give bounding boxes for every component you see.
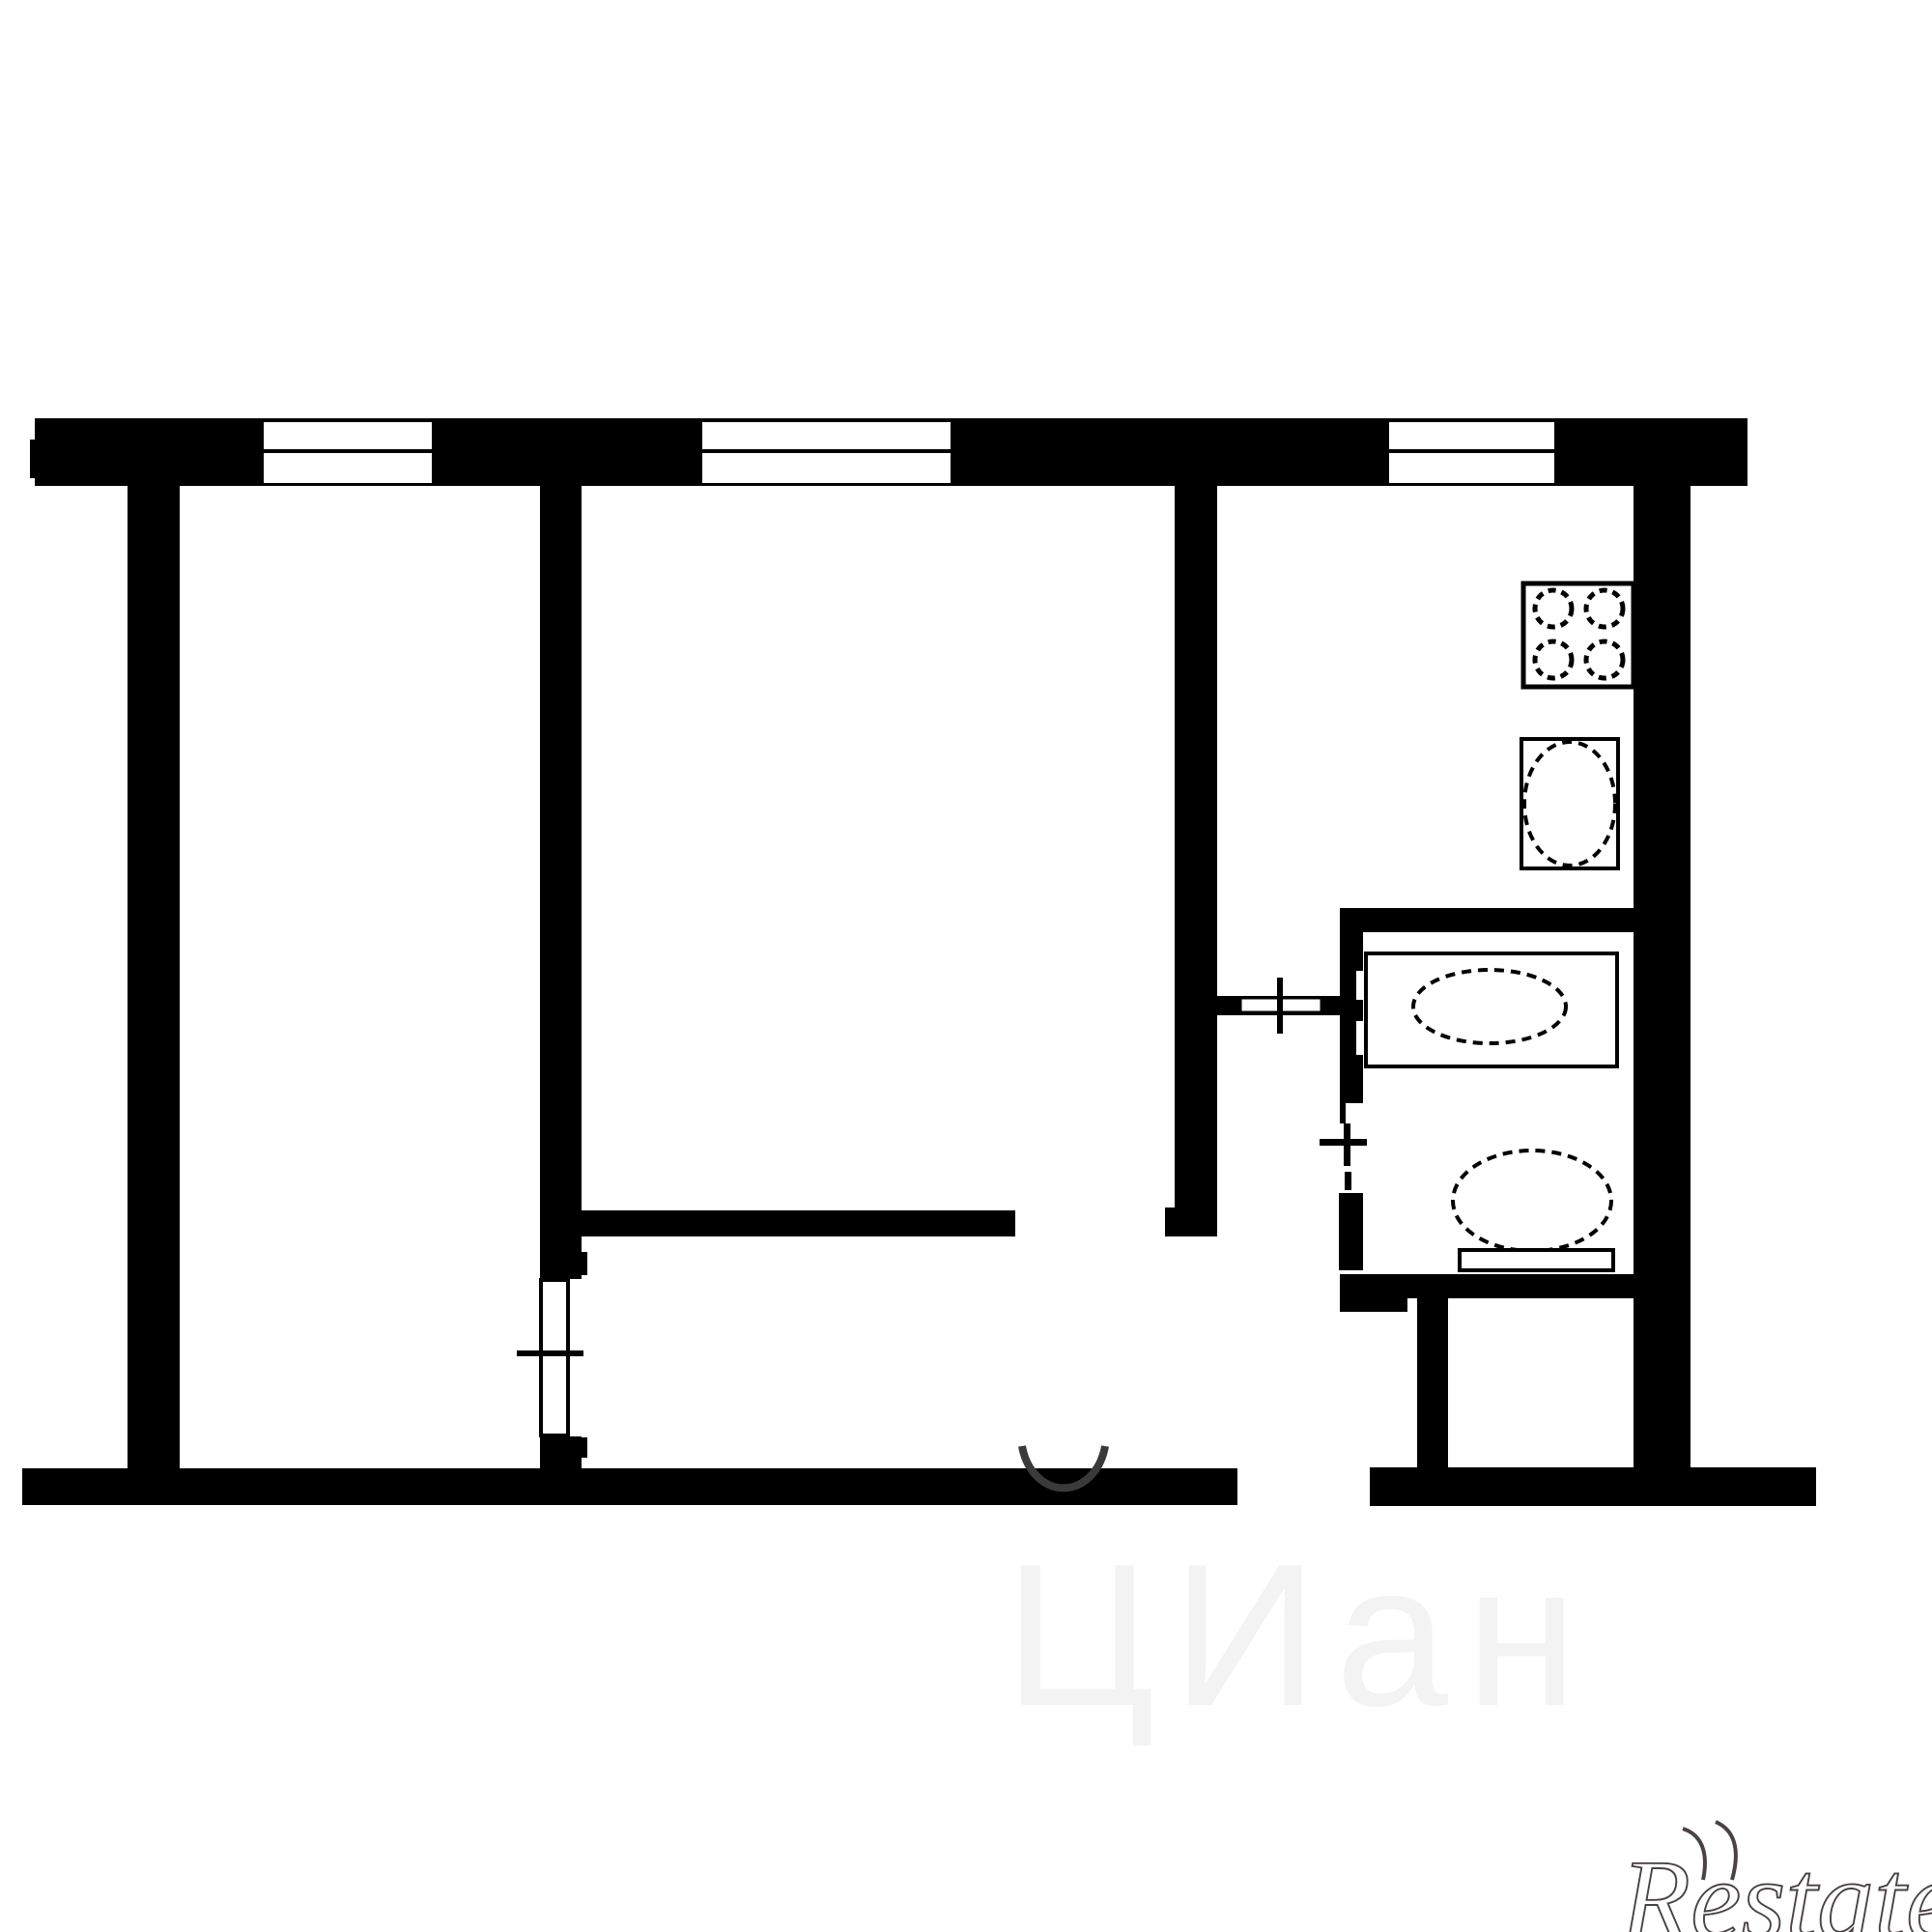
svg-text:ЦИан: ЦИан (1005, 1521, 1595, 1748)
svg-text:Restate: Restate (1620, 1836, 1932, 1932)
